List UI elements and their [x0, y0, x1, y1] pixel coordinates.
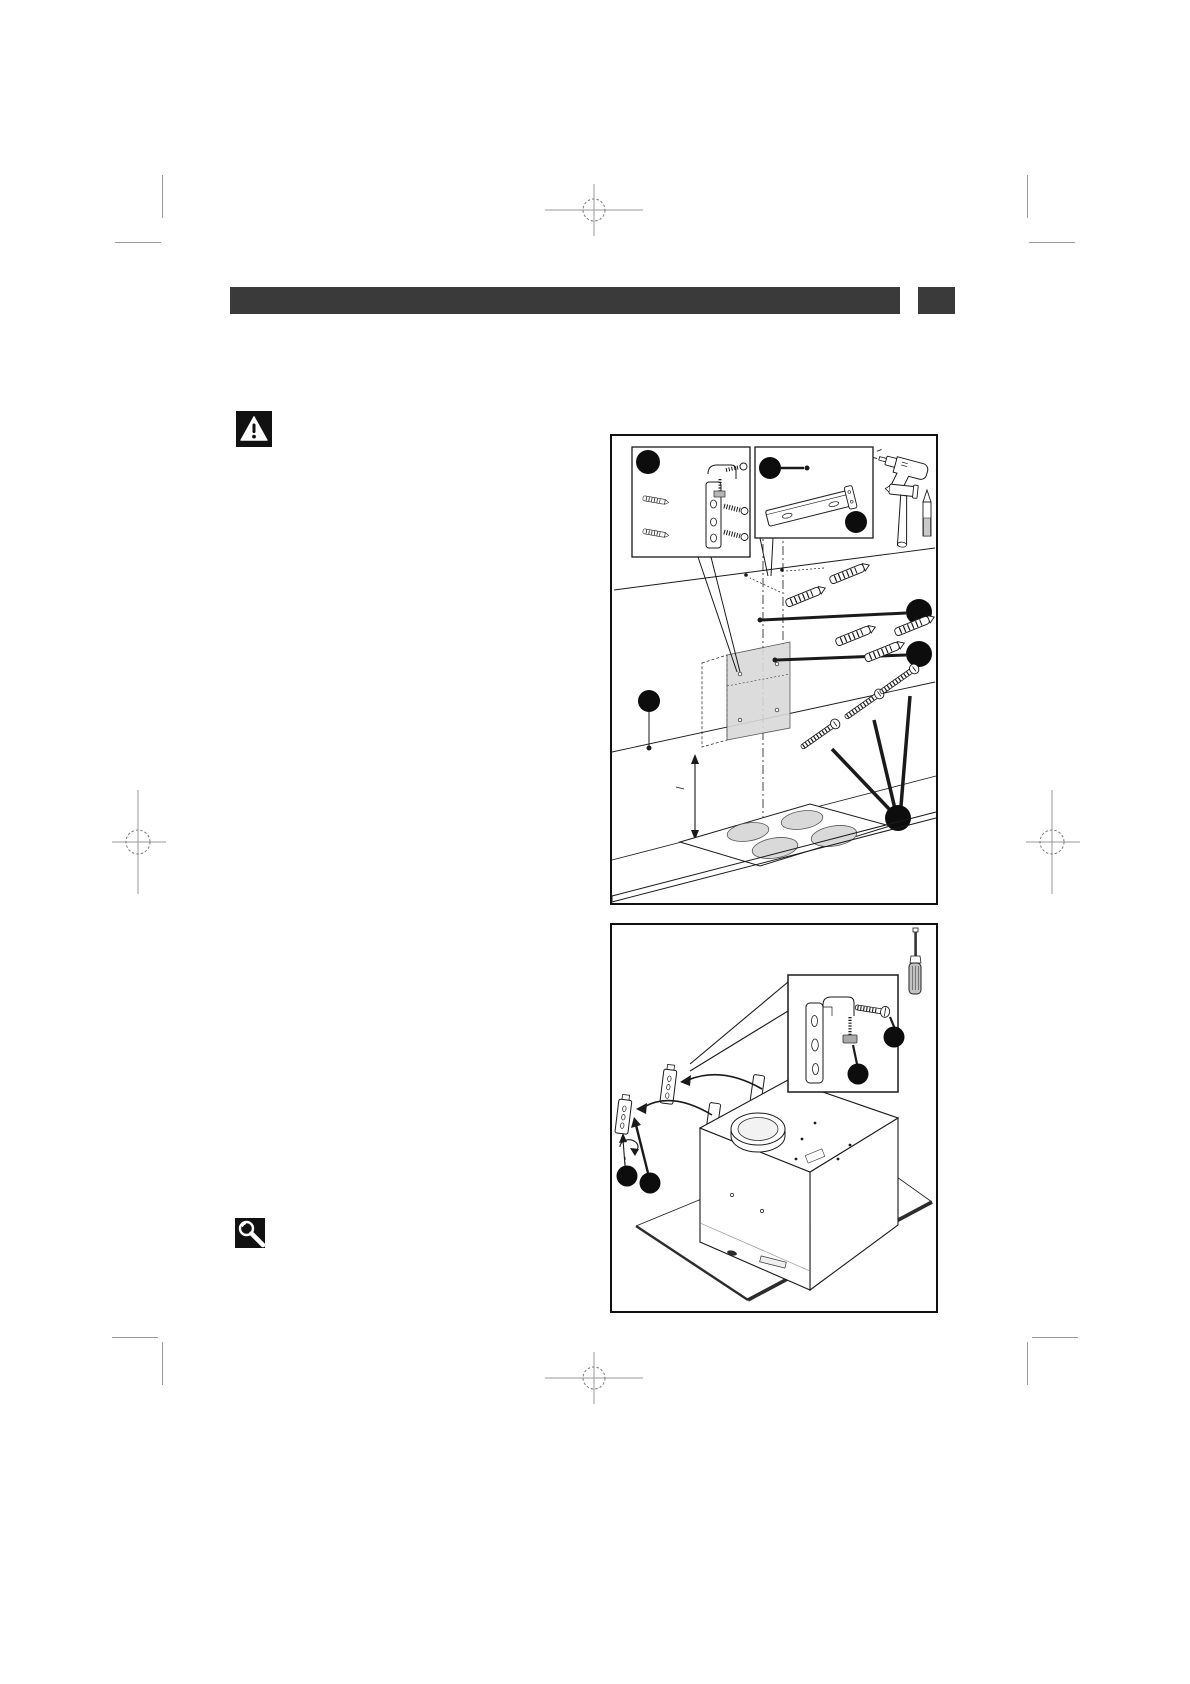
callout-badge [617, 1166, 638, 1187]
crop-mark-bottom-left-vertical [162, 1342, 163, 1385]
callout-badge-7 [885, 805, 911, 831]
drill-mark [780, 568, 784, 572]
figure-2-bracket-fitting-diagram [610, 923, 938, 1313]
drill-mark [744, 573, 748, 577]
magnifier-icon [235, 1218, 269, 1252]
registration-target-middle-right [1014, 786, 1094, 898]
callout-badge-6 [906, 641, 932, 667]
crop-mark-top-right-horizontal [1029, 242, 1075, 243]
manual-page [0, 0, 1190, 1684]
figure-1-wall-drilling-diagram [610, 434, 938, 905]
callout-badge [640, 1173, 661, 1194]
crop-mark-top-left-vertical [162, 175, 163, 218]
callout-badge [848, 1064, 869, 1085]
callout-badge-3 [845, 511, 867, 533]
callout-badge [884, 1027, 905, 1048]
crop-mark-top-right-vertical [1027, 175, 1028, 218]
crop-mark-bottom-right-vertical [1027, 1342, 1028, 1385]
callout-bracket-kit [632, 447, 750, 557]
callout-badge-1 [636, 450, 660, 474]
section-header-bar [230, 287, 900, 314]
crop-mark-bottom-right-horizontal [1032, 1337, 1078, 1338]
callout-badge-2 [759, 457, 781, 479]
crop-mark-bottom-left-horizontal [112, 1337, 158, 1338]
callout-badge-4 [638, 690, 660, 712]
section-header-corner-tab [918, 287, 955, 314]
registration-target-top-center [540, 180, 650, 240]
warning-icon [236, 411, 272, 447]
registration-target-bottom-center [540, 1348, 650, 1408]
crop-mark-top-left-horizontal [115, 242, 161, 243]
registration-target-middle-left [100, 786, 180, 898]
callout-bracket-detail [788, 975, 905, 1092]
callout-mounting-rail [755, 447, 873, 538]
